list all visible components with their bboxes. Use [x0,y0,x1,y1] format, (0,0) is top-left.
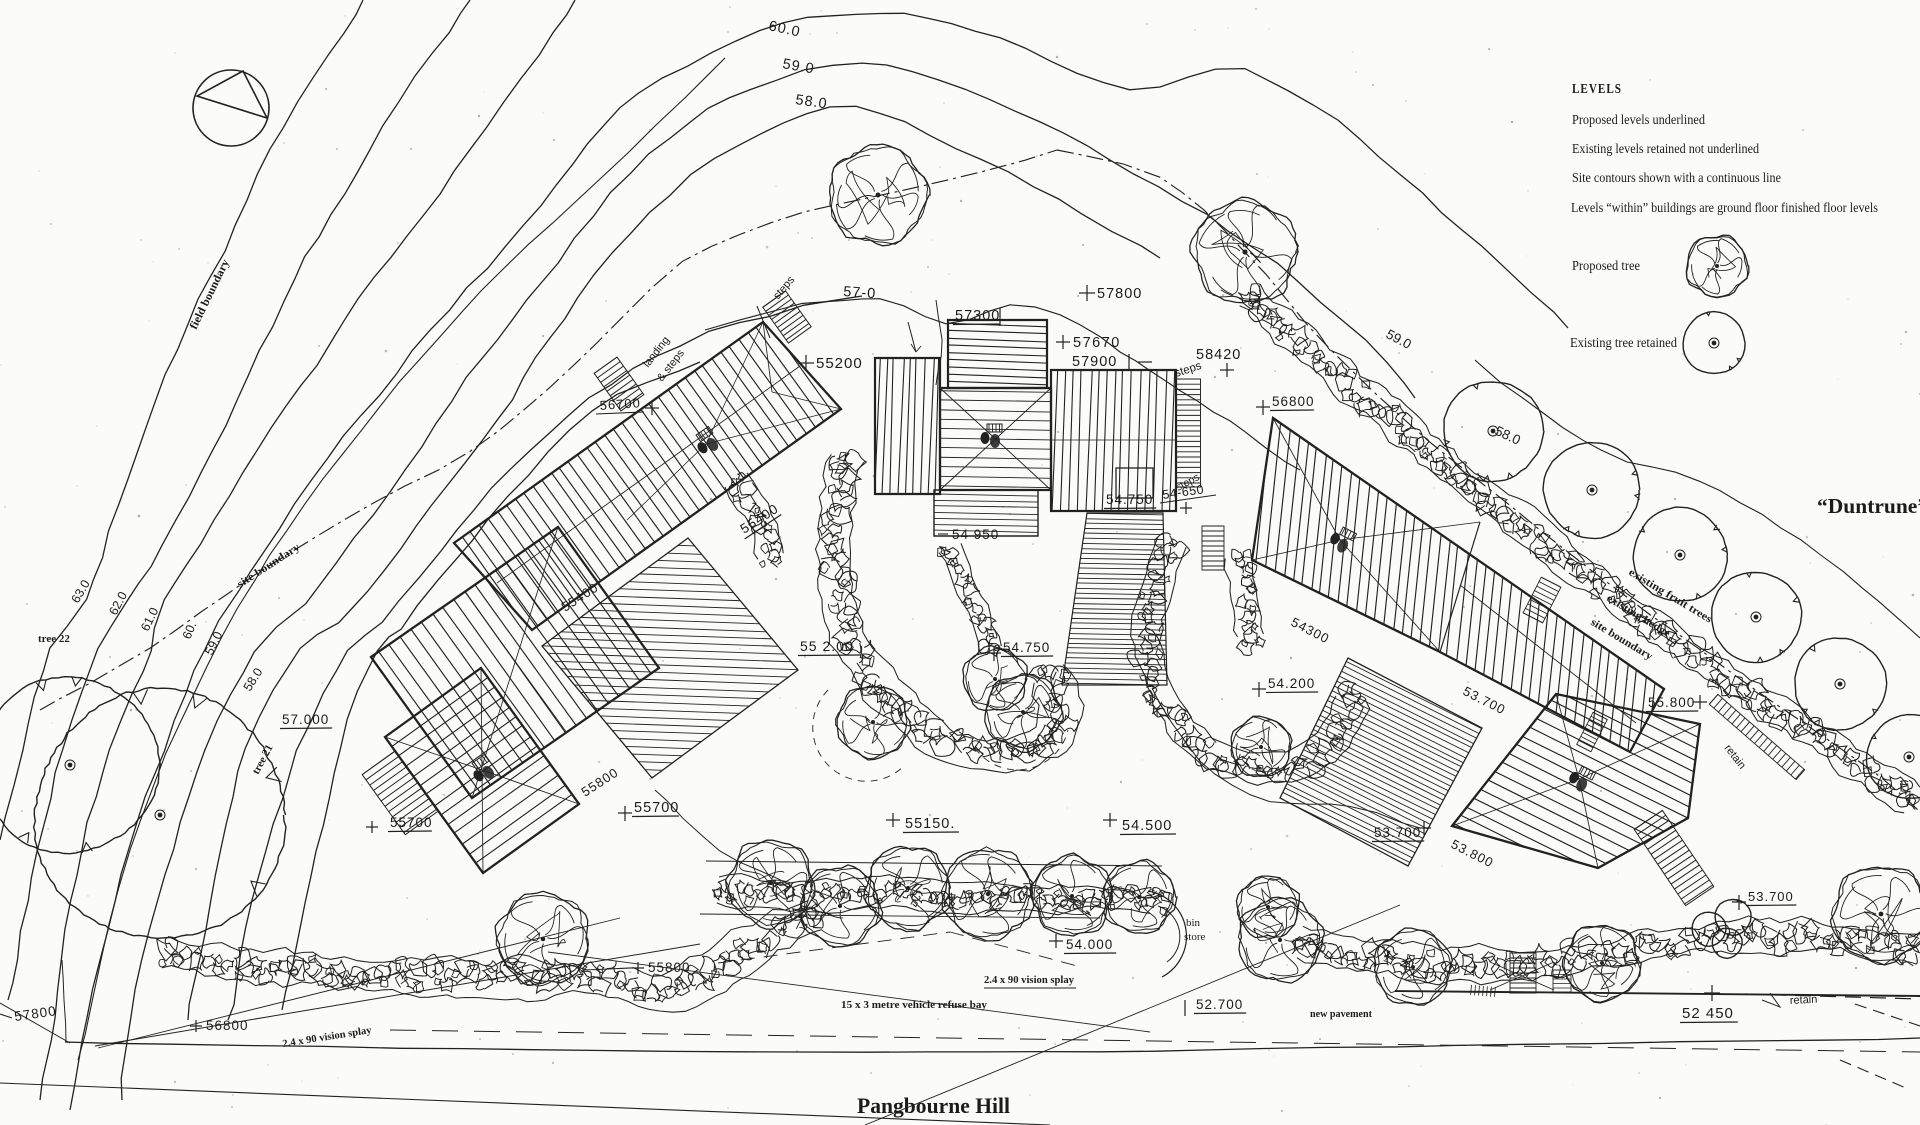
svg-text:55.800: 55.800 [1648,695,1695,710]
svg-text:57.000: 57.000 [282,712,329,727]
svg-text:tree 22: tree 22 [38,633,70,645]
svg-text:new pavement: new pavement [1310,1009,1372,1020]
svg-text:55800: 55800 [648,960,691,975]
svg-text:53.700: 53.700 [1748,889,1794,904]
svg-text:retain: retain [1790,994,1818,1007]
svg-text:54.750: 54.750 [1106,492,1153,507]
svg-text:Existing levels retained not u: Existing levels retained not underlined [1572,141,1759,156]
svg-text:55700: 55700 [390,815,433,830]
svg-text:54.750: 54.750 [1003,640,1050,655]
svg-text:57-0: 57-0 [843,284,877,302]
svg-text:store: store [1184,931,1206,943]
svg-text:57670: 57670 [1073,335,1121,351]
svg-text:Proposed tree: Proposed tree [1572,258,1640,273]
svg-text:57300: 57300 [955,308,1000,324]
svg-text:56800: 56800 [1272,394,1315,409]
svg-text:55700: 55700 [634,800,679,816]
svg-text:57800: 57800 [1097,286,1142,302]
svg-text:bin: bin [1186,917,1201,929]
svg-text:LEVELS: LEVELS [1572,81,1622,96]
svg-text:Proposed levels underlined: Proposed levels underlined [1572,112,1705,127]
svg-text:52 450: 52 450 [1682,1005,1734,1022]
svg-text:53.700: 53.700 [1374,825,1421,840]
svg-text:Levels “within” buildings are: Levels “within” buildings are ground flo… [1571,200,1878,215]
svg-text:57900: 57900 [1072,354,1117,370]
svg-text:Pangbourne Hill: Pangbourne Hill [857,1093,1010,1118]
svg-text:2.4 x 90 vision splay: 2.4 x 90 vision splay [984,975,1075,986]
svg-text:Existing tree retained: Existing tree retained [1570,335,1677,350]
svg-text:54.200: 54.200 [1268,676,1315,691]
svg-text:55 2.00: 55 2.00 [800,638,854,654]
svg-text:54 950: 54 950 [952,527,999,542]
svg-text:15 x 3 metre vehicle refuse ba: 15 x 3 metre vehicle refuse bay [841,1000,988,1011]
svg-text:56800: 56800 [206,1018,249,1033]
svg-text:56700: 56700 [599,395,641,413]
svg-text:Site contours shown with a con: Site contours shown with a continuous li… [1572,170,1781,185]
svg-text:58420: 58420 [1196,347,1241,363]
svg-text:55200: 55200 [816,355,863,372]
svg-text:52.700: 52.700 [1196,997,1243,1012]
svg-text:“Duntrune”: “Duntrune” [1817,494,1920,518]
svg-text:54.500: 54.500 [1122,818,1172,834]
svg-text:54.000: 54.000 [1066,937,1113,952]
svg-text:55150.: 55150. [905,816,955,832]
